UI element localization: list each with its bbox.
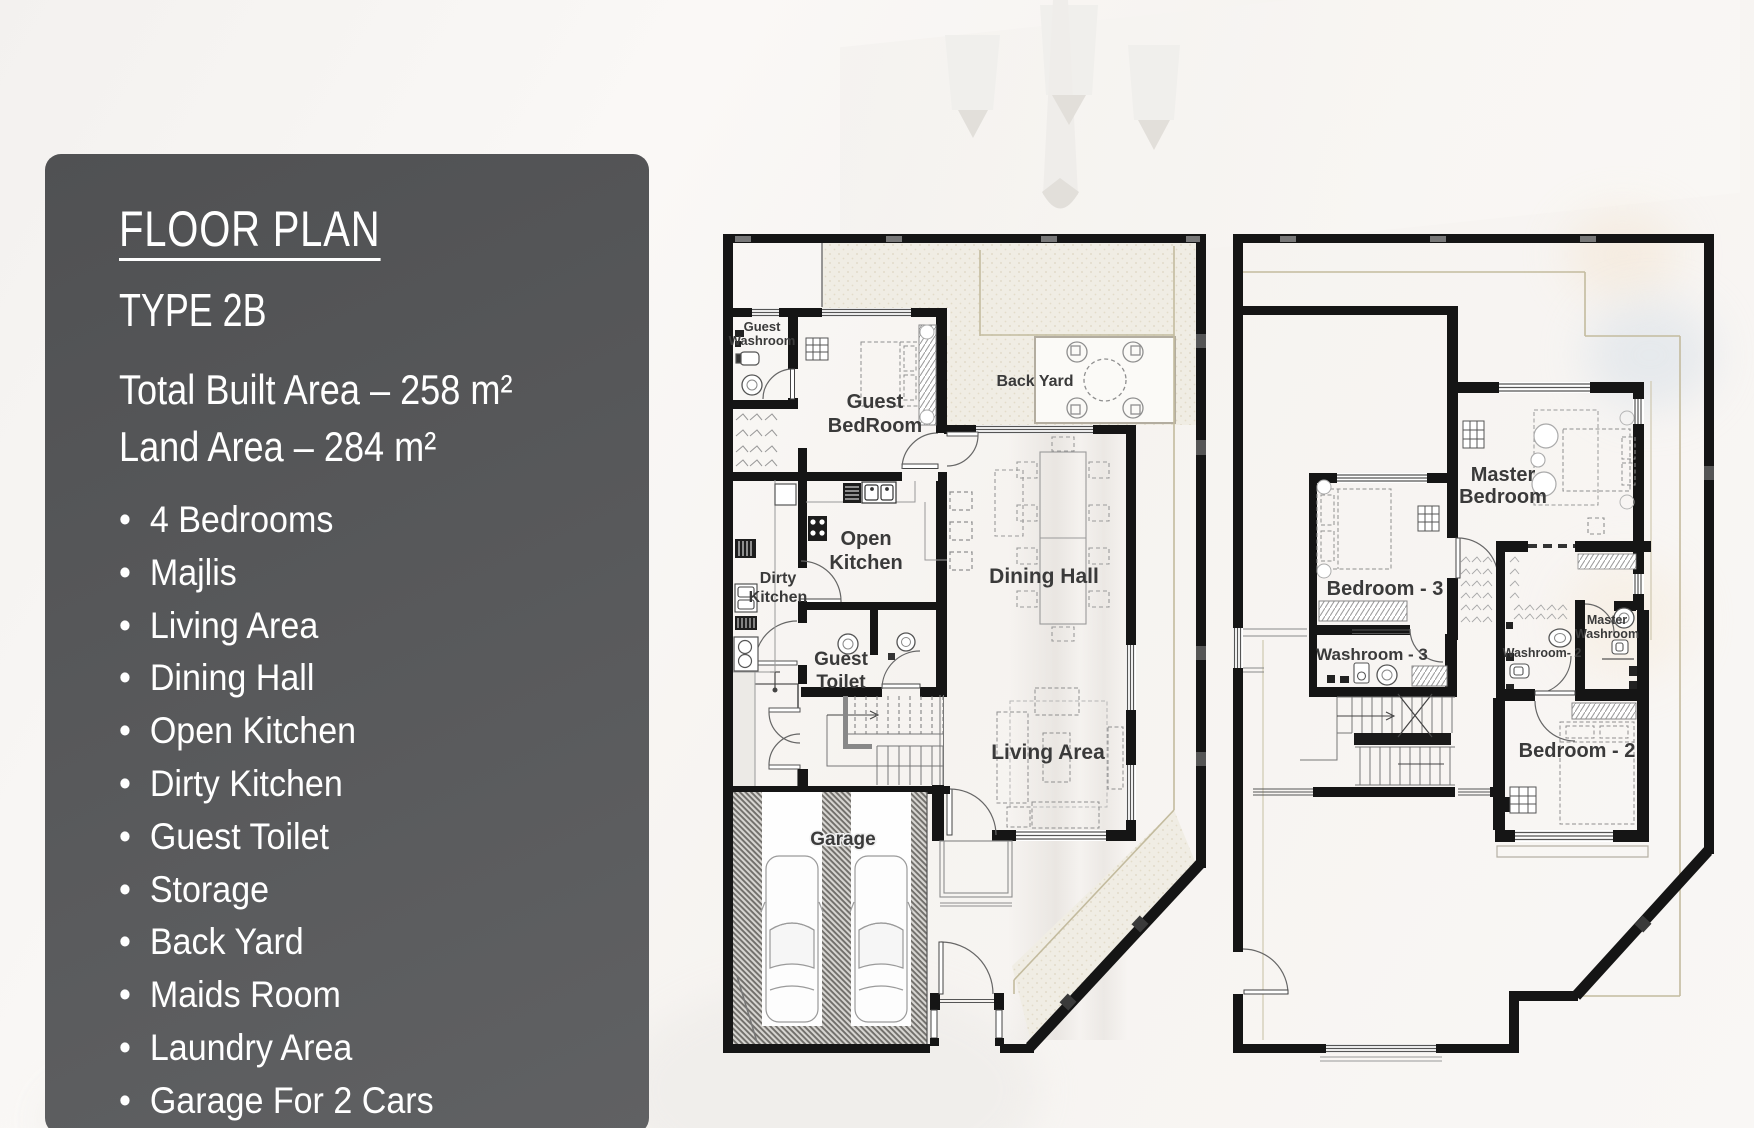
svg-text:Washroom: Washroom — [729, 333, 796, 348]
svg-text:Bedroom - 3: Bedroom - 3 — [1327, 578, 1444, 600]
svg-text:Dirty: Dirty — [760, 570, 797, 587]
svg-text:Bedroom - 2: Bedroom - 2 — [1519, 740, 1636, 762]
svg-text:Kitchen: Kitchen — [749, 589, 808, 606]
svg-text:Master: Master — [1471, 464, 1536, 486]
svg-text:Toilet: Toilet — [816, 672, 866, 693]
svg-text:Open: Open — [840, 528, 891, 550]
svg-text:Washroom- 2: Washroom- 2 — [1503, 646, 1582, 660]
svg-text:Guest: Guest — [814, 649, 869, 670]
svg-text:Back Yard: Back Yard — [996, 373, 1073, 390]
svg-text:BedRoom: BedRoom — [828, 415, 922, 437]
svg-text:Kitchen: Kitchen — [829, 552, 902, 574]
svg-text:Washroom: Washroom — [1575, 627, 1639, 641]
svg-text:Bedroom: Bedroom — [1459, 486, 1547, 508]
svg-text:Garage: Garage — [810, 829, 875, 850]
svg-text:Master: Master — [1587, 613, 1627, 627]
svg-text:Guest: Guest — [847, 391, 904, 413]
svg-text:Washroom - 3: Washroom - 3 — [1316, 645, 1428, 664]
svg-text:Dining Hall: Dining Hall — [989, 565, 1099, 588]
svg-text:Living Area: Living Area — [991, 741, 1105, 764]
svg-text:Guest: Guest — [744, 319, 782, 334]
